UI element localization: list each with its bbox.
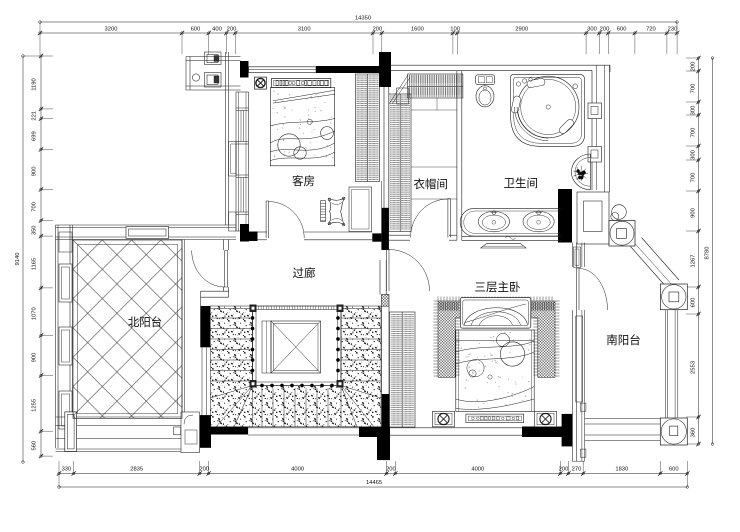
svg-text:600: 600 <box>191 27 201 33</box>
svg-text:客房: 客房 <box>292 174 315 188</box>
svg-text:2553: 2553 <box>691 361 697 374</box>
svg-text:200: 200 <box>559 467 569 473</box>
svg-text:2835: 2835 <box>130 467 143 473</box>
svg-text:9140: 9140 <box>15 253 21 266</box>
svg-text:900: 900 <box>691 208 697 218</box>
svg-text:1255: 1255 <box>32 399 38 412</box>
svg-text:400: 400 <box>212 27 222 33</box>
svg-text:南阳台: 南阳台 <box>606 333 641 347</box>
svg-text:三层主卧: 三层主卧 <box>475 281 521 294</box>
svg-text:300: 300 <box>587 27 597 33</box>
svg-text:200: 200 <box>600 27 610 33</box>
svg-text:200: 200 <box>199 467 209 473</box>
svg-text:221: 221 <box>32 111 38 121</box>
svg-text:8780: 8780 <box>705 247 711 260</box>
svg-text:700: 700 <box>32 202 38 212</box>
svg-text:699: 699 <box>32 131 38 141</box>
svg-text:1600: 1600 <box>411 27 424 33</box>
svg-text:100: 100 <box>450 27 460 33</box>
svg-text:600: 600 <box>669 467 679 473</box>
svg-text:600: 600 <box>617 27 627 33</box>
svg-text:1267: 1267 <box>691 255 697 268</box>
svg-text:4000: 4000 <box>471 467 484 473</box>
svg-text:200: 200 <box>386 467 396 473</box>
svg-text:700: 700 <box>691 84 697 94</box>
svg-text:350: 350 <box>32 225 38 235</box>
svg-text:4000: 4000 <box>291 467 304 473</box>
svg-text:200: 200 <box>691 62 697 72</box>
svg-text:230: 230 <box>668 27 678 33</box>
svg-text:360: 360 <box>691 428 697 438</box>
svg-text:270: 270 <box>572 467 582 473</box>
svg-text:14465: 14465 <box>366 480 382 486</box>
svg-text:200: 200 <box>227 27 237 33</box>
svg-text:300: 300 <box>691 150 697 160</box>
svg-text:卫生间: 卫生间 <box>504 176 539 190</box>
svg-text:900: 900 <box>32 353 38 363</box>
svg-text:700: 700 <box>691 173 697 183</box>
svg-text:600: 600 <box>691 298 697 308</box>
svg-text:14350: 14350 <box>355 16 371 22</box>
svg-text:1190: 1190 <box>32 78 38 90</box>
svg-text:700: 700 <box>691 128 697 138</box>
svg-text:1830: 1830 <box>615 467 628 473</box>
svg-text:过廊: 过廊 <box>293 266 316 280</box>
svg-text:900: 900 <box>32 167 38 177</box>
svg-text:衣帽间: 衣帽间 <box>413 177 448 191</box>
svg-text:2900: 2900 <box>515 27 528 33</box>
svg-text:1165: 1165 <box>32 258 38 270</box>
svg-text:3100: 3100 <box>298 27 311 33</box>
svg-text:200: 200 <box>373 27 383 33</box>
svg-text:北阳台: 北阳台 <box>128 315 163 329</box>
svg-text:560: 560 <box>32 441 38 451</box>
svg-text:1070: 1070 <box>32 307 38 320</box>
svg-text:300: 300 <box>691 106 697 116</box>
svg-text:330: 330 <box>62 467 72 473</box>
svg-text:3200: 3200 <box>105 27 118 33</box>
svg-text:720: 720 <box>646 27 656 33</box>
